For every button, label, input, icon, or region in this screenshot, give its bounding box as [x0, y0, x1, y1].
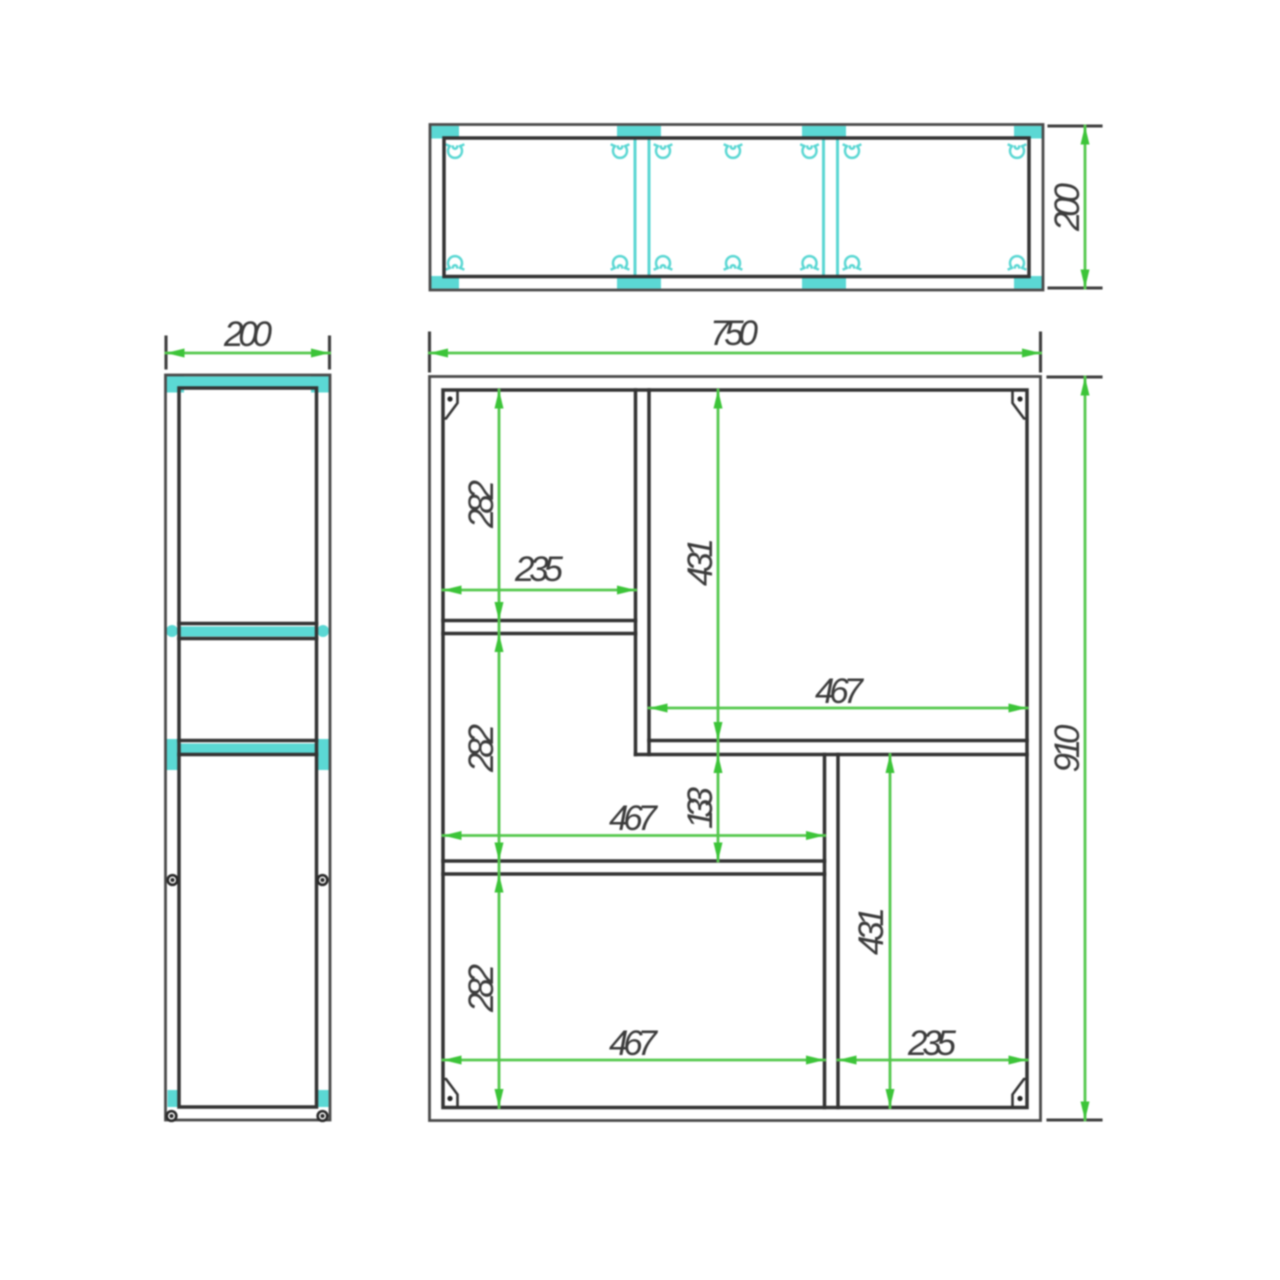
- svg-text:200: 200: [223, 315, 273, 354]
- svg-text:235: 235: [514, 550, 564, 589]
- svg-text:133: 133: [681, 786, 720, 829]
- svg-text:282: 282: [462, 480, 501, 529]
- svg-text:200: 200: [1048, 182, 1087, 232]
- svg-text:467: 467: [609, 799, 659, 838]
- svg-text:282: 282: [462, 724, 501, 773]
- svg-text:431: 431: [681, 538, 720, 586]
- svg-text:467: 467: [815, 672, 865, 711]
- svg-text:431: 431: [852, 907, 891, 955]
- svg-text:910: 910: [1048, 724, 1087, 773]
- svg-text:282: 282: [462, 964, 501, 1013]
- svg-text:750: 750: [710, 314, 759, 353]
- svg-text:235: 235: [907, 1024, 957, 1063]
- svg-text:467: 467: [609, 1024, 659, 1063]
